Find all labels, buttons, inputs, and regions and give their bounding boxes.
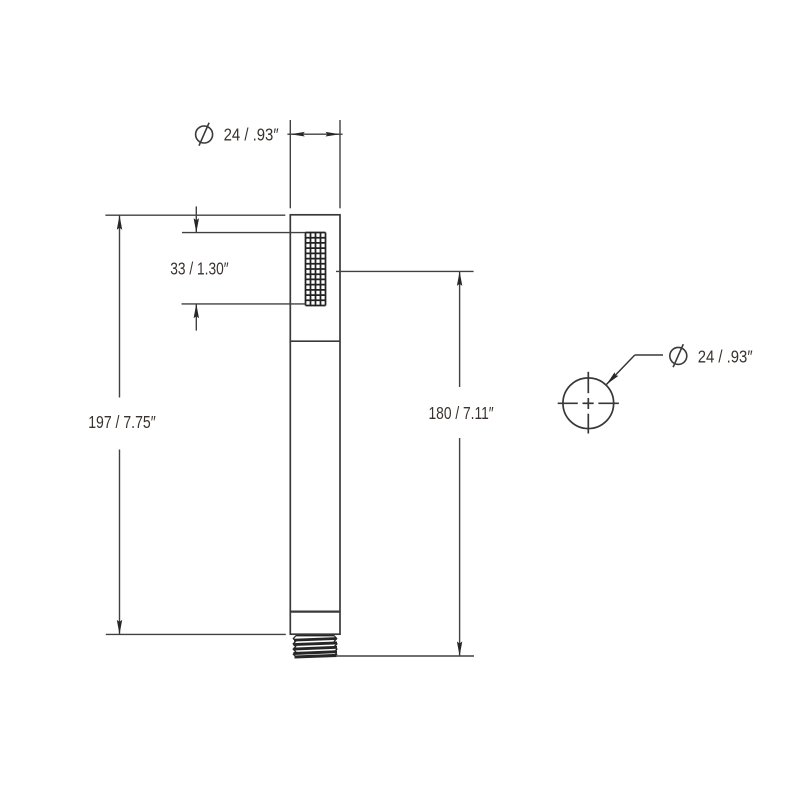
svg-text:24 / .93″: 24 / .93″ [698,347,753,367]
svg-text:33 / 1.30″: 33 / 1.30″ [170,259,228,279]
svg-text:197 / 7.75″: 197 / 7.75″ [88,412,156,432]
svg-text:180 / 7.11″: 180 / 7.11″ [429,403,494,423]
svg-text:24 / .93″: 24 / .93″ [224,125,279,145]
